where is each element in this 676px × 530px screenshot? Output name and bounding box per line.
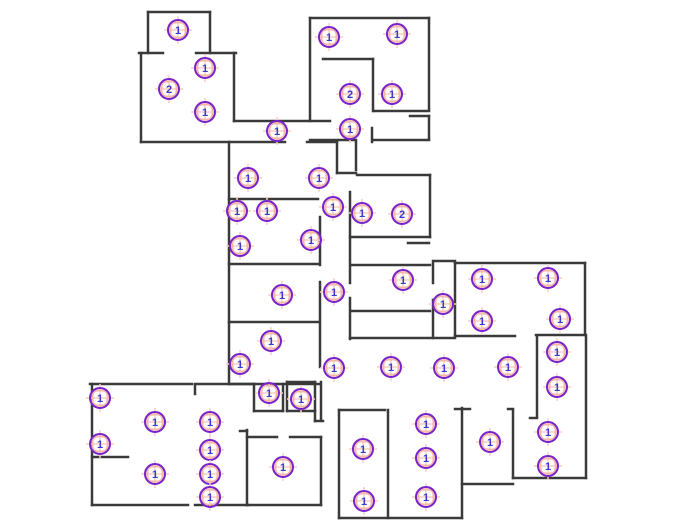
marker-count-label: 1	[326, 32, 332, 44]
marker-count-label: 2	[399, 209, 405, 221]
marker-count-label: 1	[237, 241, 243, 253]
marker-count-label: 1	[347, 124, 353, 136]
marker-count-label: 1	[316, 173, 322, 185]
marker-count-label: 1	[361, 496, 367, 508]
marker-count-label: 1	[545, 461, 551, 473]
marker-count-label: 1	[237, 359, 243, 371]
marker-count-label: 1	[298, 394, 304, 406]
marker-count-label: 1	[274, 126, 280, 138]
marker-count-label: 1	[152, 417, 158, 429]
marker-count-label: 1	[330, 202, 336, 214]
marker-count-label: 1	[97, 439, 103, 451]
marker-count-label: 1	[279, 290, 285, 302]
marker-count-label: 1	[202, 107, 208, 119]
marker-count-label: 1	[268, 336, 274, 348]
marker-count-label: 1	[505, 362, 511, 374]
marker-count-label: 1	[264, 206, 270, 218]
marker-count-label: 1	[207, 445, 213, 457]
marker-count-label: 1	[266, 388, 272, 400]
marker-count-label: 1	[545, 427, 551, 439]
marker-count-label: 1	[359, 208, 365, 220]
marker-count-label: 1	[280, 462, 286, 474]
floor-plan-canvas: 1121111211111111211111111111111111111111…	[0, 0, 676, 530]
marker-count-label: 1	[331, 363, 337, 375]
marker-count-label: 1	[400, 275, 406, 287]
marker-count-label: 1	[557, 314, 563, 326]
marker-count-label: 1	[175, 25, 181, 37]
marker-count-label: 1	[234, 206, 240, 218]
marker-count-label: 1	[554, 347, 560, 359]
marker-count-label: 1	[308, 235, 314, 247]
marker-count-label: 1	[207, 417, 213, 429]
marker-count-label: 1	[207, 492, 213, 504]
marker-count-label: 1	[152, 469, 158, 481]
marker-count-label: 1	[245, 173, 251, 185]
marker-count-label: 1	[441, 363, 447, 375]
marker-count-label: 1	[388, 362, 394, 374]
marker-count-label: 1	[202, 63, 208, 75]
marker-count-label: 1	[487, 437, 493, 449]
marker-count-label: 1	[545, 273, 551, 285]
marker-count-label: 1	[554, 382, 560, 394]
marker-count-label: 1	[423, 453, 429, 465]
marker-count-label: 1	[423, 419, 429, 431]
marker-count-label: 1	[389, 89, 395, 101]
marker-count-label: 1	[440, 299, 446, 311]
marker-count-label: 1	[331, 287, 337, 299]
marker-count-label: 1	[423, 492, 429, 504]
marker-count-label: 1	[394, 29, 400, 41]
marker-count-label: 1	[479, 274, 485, 286]
marker-count-label: 1	[97, 393, 103, 405]
marker-count-label: 2	[347, 89, 353, 101]
marker-count-label: 1	[479, 316, 485, 328]
marker-count-label: 1	[360, 444, 366, 456]
floor-plan-page: 1121111211111111211111111111111111111111…	[0, 0, 676, 530]
marker-count-label: 2	[166, 84, 172, 96]
marker-count-label: 1	[207, 469, 213, 481]
